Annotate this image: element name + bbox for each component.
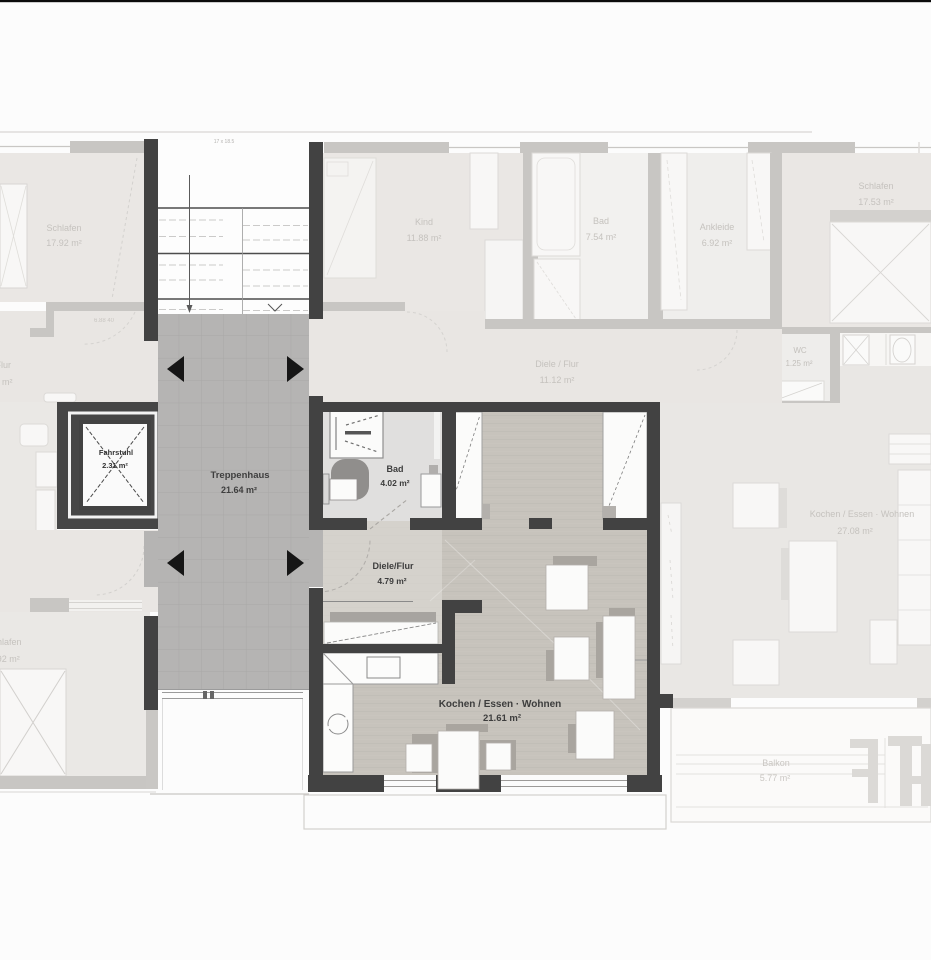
svg-text:2.31 m²: 2.31 m² (102, 461, 128, 470)
svg-text:5.77 m²: 5.77 m² (760, 773, 791, 783)
svg-text:27.08 m²: 27.08 m² (837, 526, 873, 536)
svg-text:Fahrstuhl: Fahrstuhl (99, 448, 133, 457)
svg-text:21.61 m²: 21.61 m² (483, 713, 521, 724)
svg-text:Bad: Bad (386, 464, 403, 474)
svg-text:Schlafen: Schlafen (46, 223, 81, 233)
svg-text:Kochen / Essen · Wohnen: Kochen / Essen · Wohnen (810, 509, 914, 519)
svg-text:1.25 m²: 1.25 m² (785, 359, 812, 368)
svg-text:4.79 m²: 4.79 m² (377, 576, 406, 586)
svg-text:Kochen / Essen · Wohnen: Kochen / Essen · Wohnen (439, 699, 562, 710)
svg-text:Schlafen: Schlafen (0, 637, 22, 647)
svg-text:17.92 m²: 17.92 m² (46, 238, 82, 248)
svg-text:15.92 m²: 15.92 m² (0, 654, 20, 664)
svg-text:Diele/Flur: Diele/Flur (372, 561, 414, 571)
svg-text:4.02 m²: 4.02 m² (380, 478, 409, 488)
svg-text:m²: m² (2, 377, 13, 387)
svg-text:21.64 m²: 21.64 m² (221, 485, 257, 495)
svg-text:11.12 m²: 11.12 m² (540, 375, 575, 385)
svg-text:Treppenhaus: Treppenhaus (210, 470, 269, 481)
svg-text:17.53 m²: 17.53 m² (858, 197, 894, 207)
svg-text:6.88 40: 6.88 40 (94, 318, 115, 324)
svg-text:Diele / Flur: Diele / Flur (535, 359, 579, 369)
svg-text:11.88 m²: 11.88 m² (407, 233, 442, 243)
svg-text:17 x 18.5: 17 x 18.5 (214, 139, 235, 145)
svg-text:Balkon: Balkon (762, 758, 790, 768)
svg-text:Schlafen: Schlafen (858, 181, 893, 191)
svg-text:6.92 m²: 6.92 m² (702, 238, 733, 248)
svg-text:WC: WC (793, 346, 807, 355)
svg-text:Bad: Bad (593, 216, 609, 226)
svg-text:7.54 m²: 7.54 m² (586, 232, 617, 242)
svg-text:e Flur: e Flur (0, 360, 11, 370)
svg-text:Ankleide: Ankleide (700, 222, 735, 232)
svg-text:Kind: Kind (415, 217, 433, 227)
